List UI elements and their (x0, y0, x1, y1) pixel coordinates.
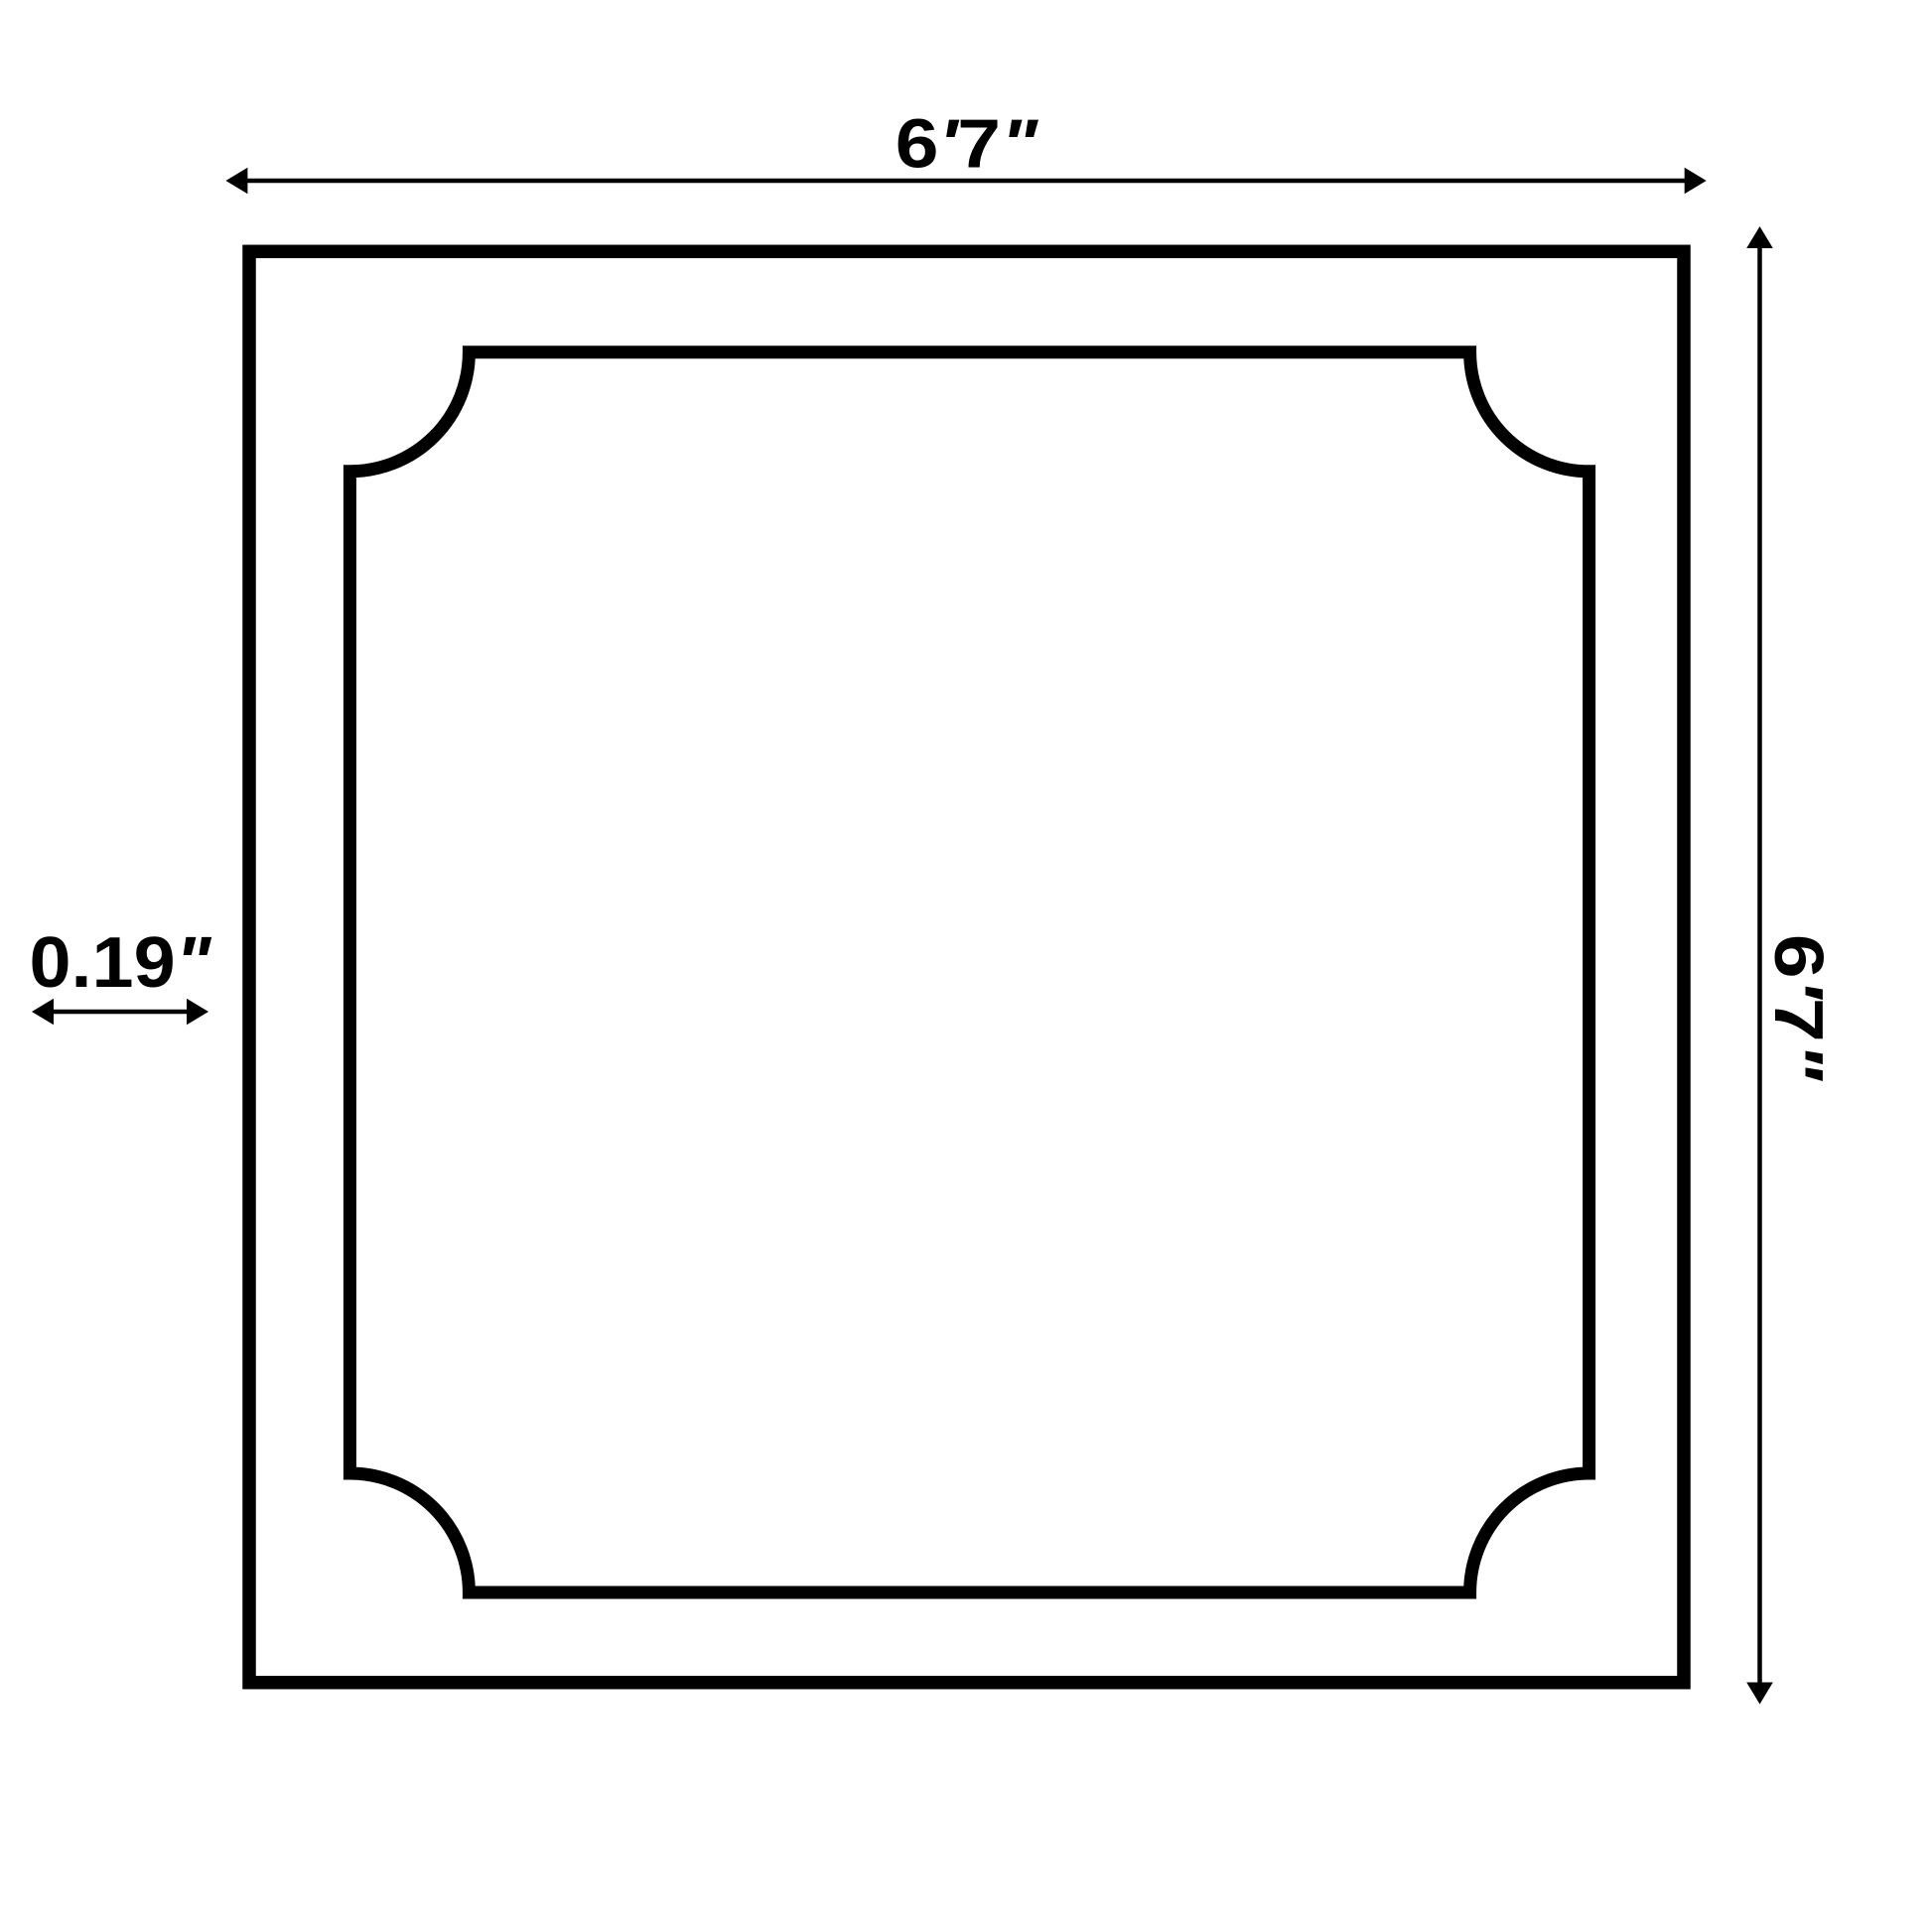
svg-text:6'7": 6'7" (896, 105, 1038, 183)
svg-text:0.19": 0.19" (30, 923, 212, 1003)
svg-text:6'7": 6'7" (1760, 934, 1838, 1081)
